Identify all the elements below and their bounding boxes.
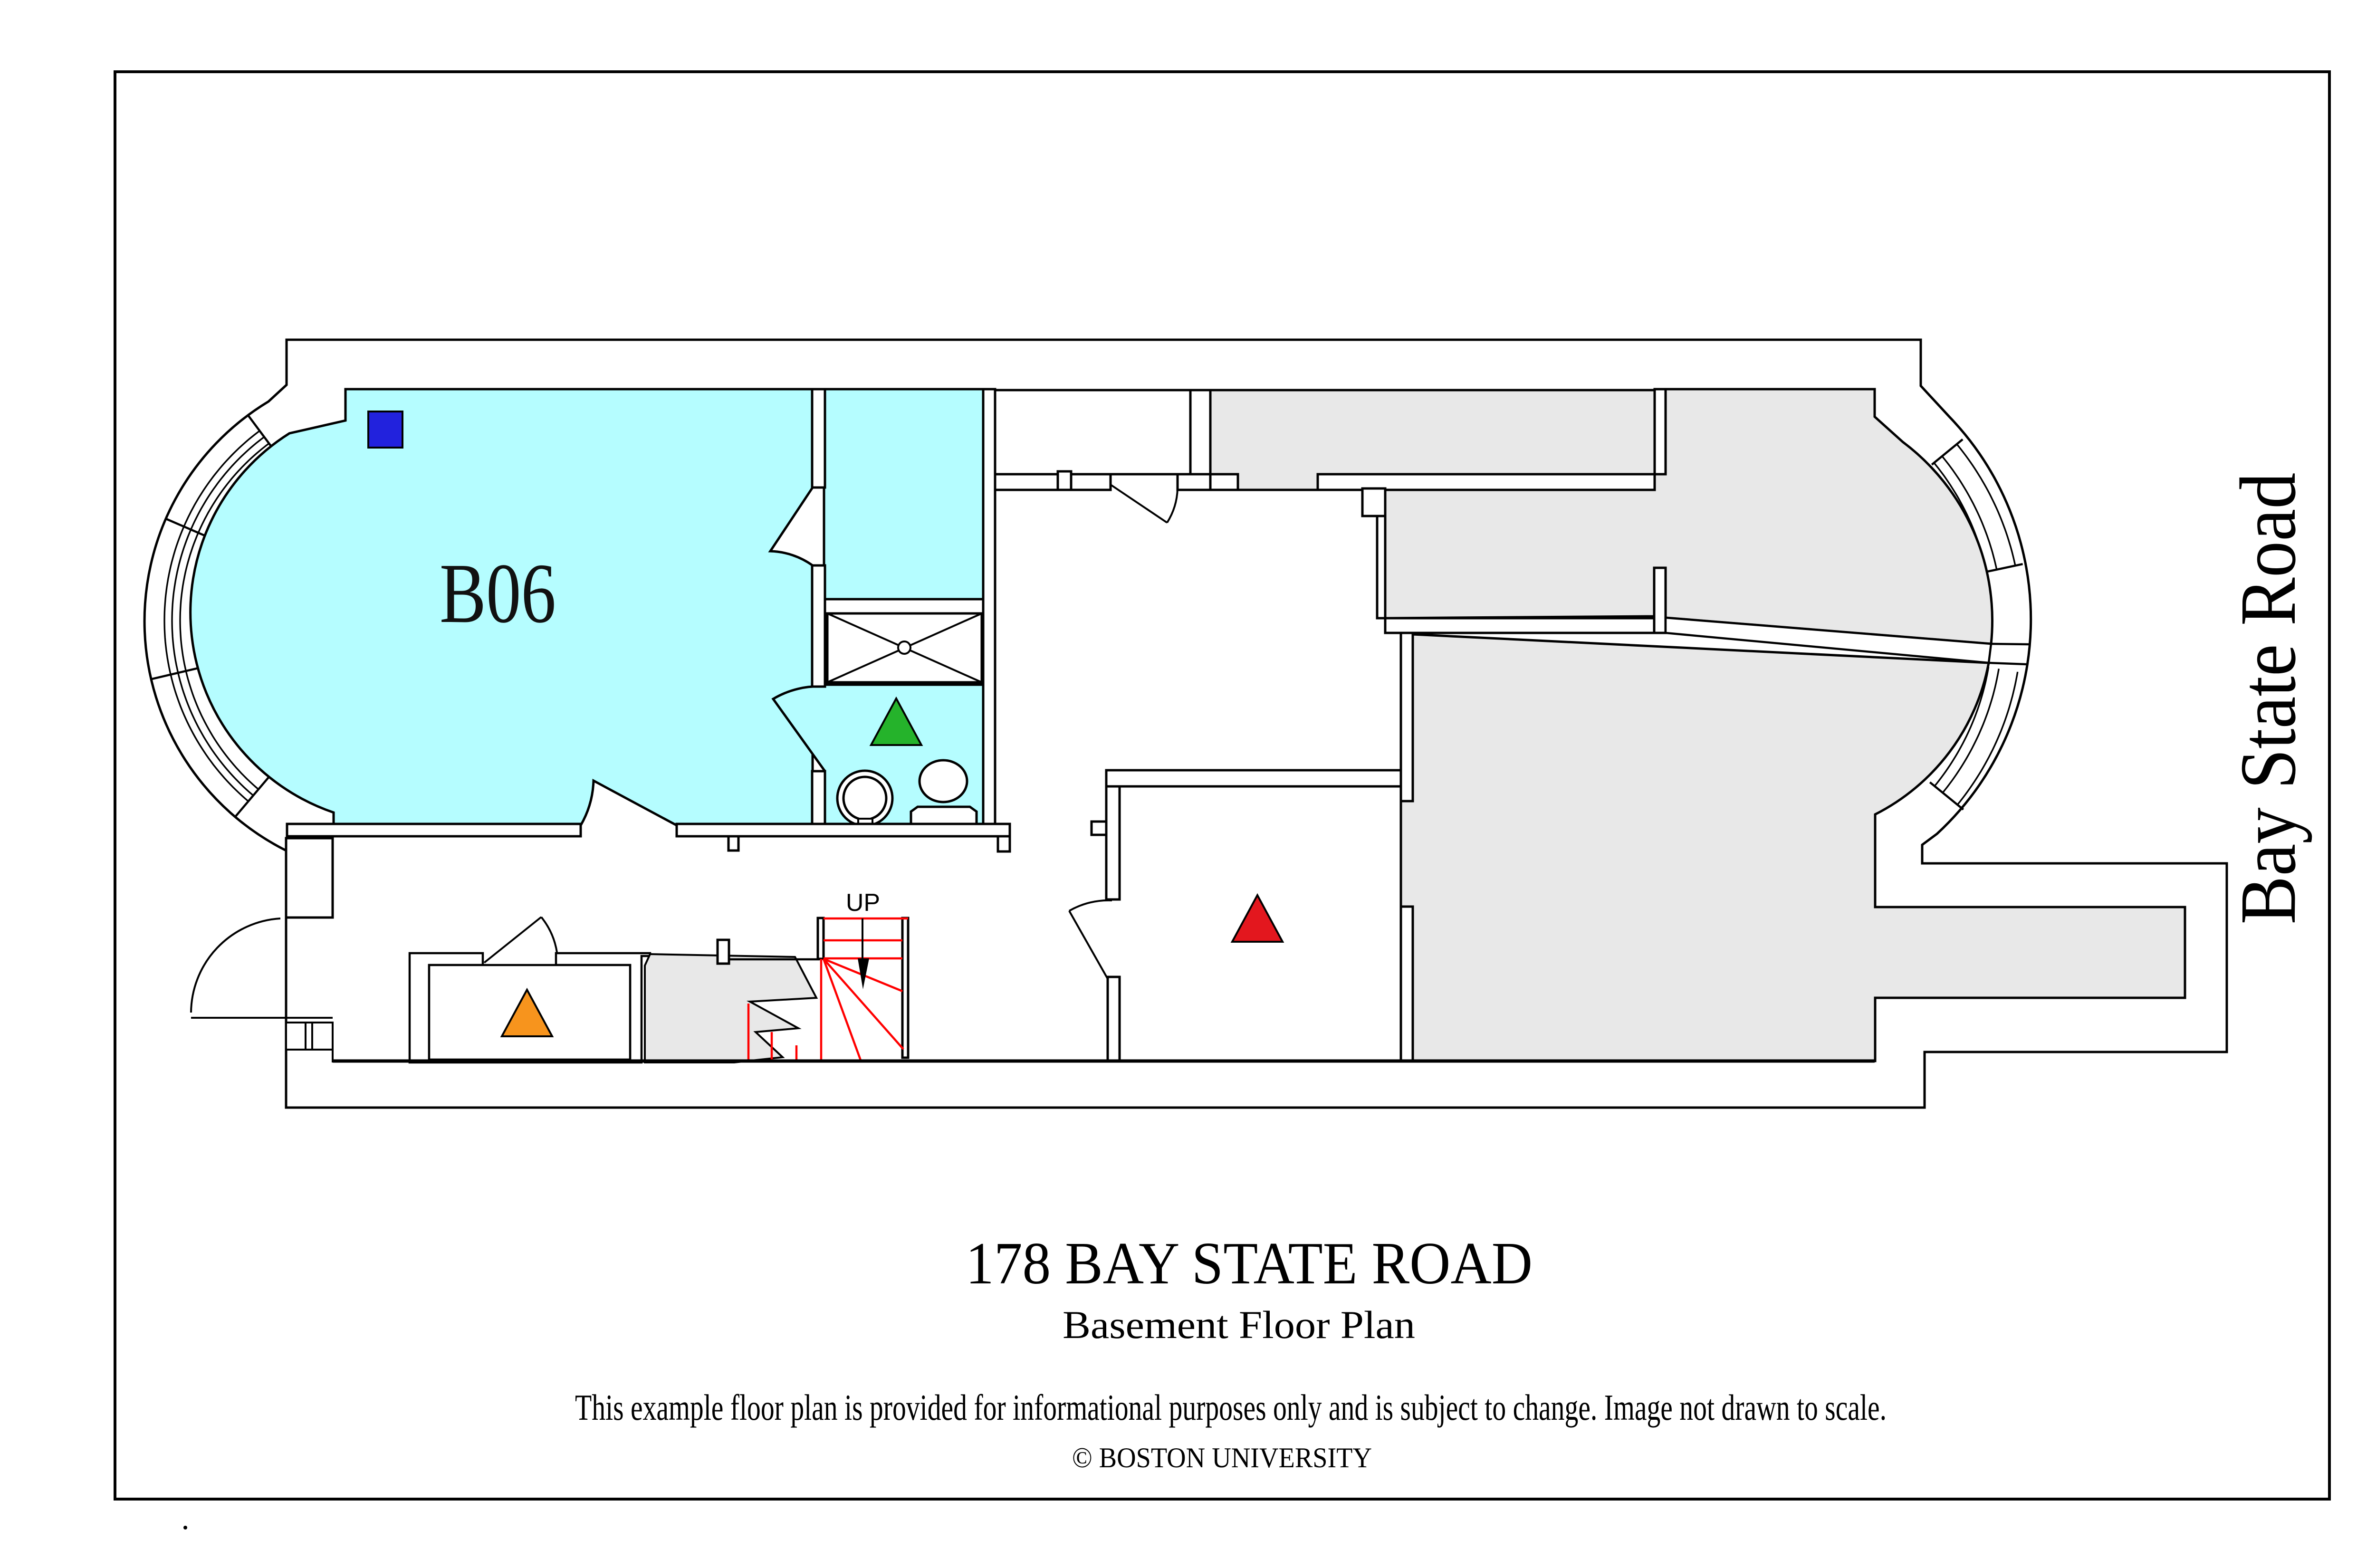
svg-text:B06: B06 (440, 546, 556, 641)
svg-text:This example floor plan is pro: This example floor plan is provided for … (575, 1387, 1887, 1428)
svg-text:Bay State Road: Bay State Road (2224, 473, 2312, 925)
svg-text:178 BAY STATE ROAD: 178 BAY STATE ROAD (966, 1231, 1533, 1297)
svg-text:UP: UP (846, 889, 880, 917)
svg-text:Basement Floor Plan: Basement Floor Plan (1063, 1303, 1415, 1347)
svg-text:© BOSTON UNIVERSITY: © BOSTON UNIVERSITY (1072, 1442, 1372, 1473)
